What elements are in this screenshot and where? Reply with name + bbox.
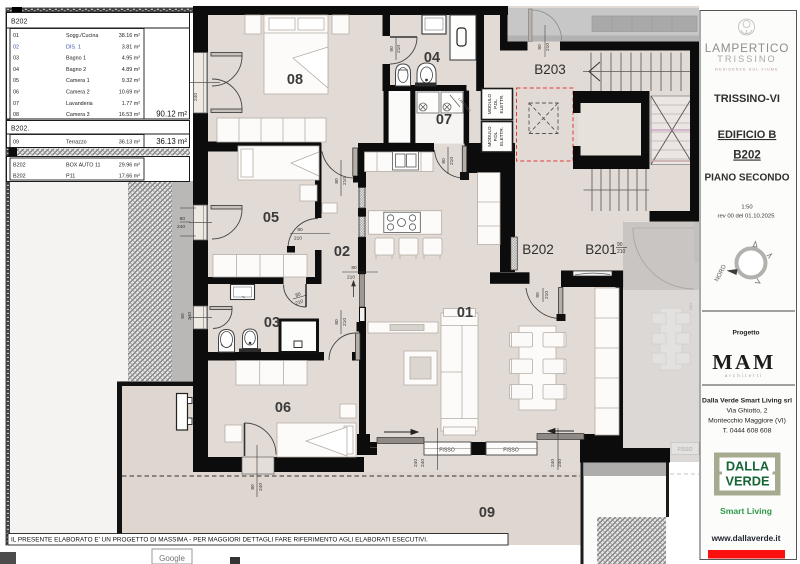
svg-text:LAMPERTICO: LAMPERTICO — [705, 41, 789, 55]
svg-text:architetti: architetti — [725, 373, 764, 378]
svg-text:B202: B202 — [733, 150, 761, 162]
svg-text:Progetto: Progetto — [732, 330, 759, 337]
svg-text:TRISSINO-VI: TRISSINO-VI — [714, 93, 780, 105]
svg-text:DALLA: DALLA — [726, 459, 769, 474]
svg-text:PIANO SECONDO: PIANO SECONDO — [704, 173, 789, 184]
svg-text:MAM: MAM — [712, 350, 776, 374]
svg-text:RESIDENZE SUL FIUME: RESIDENZE SUL FIUME — [715, 68, 778, 72]
svg-text:Via Ghiotto, 2: Via Ghiotto, 2 — [726, 408, 767, 415]
svg-text:Montecchio Maggiore (VI): Montecchio Maggiore (VI) — [708, 418, 786, 425]
svg-text:www.dallaverde.it: www.dallaverde.it — [711, 534, 781, 543]
svg-text:Dalla Verde Smart Living srl: Dalla Verde Smart Living srl — [702, 398, 792, 405]
svg-text:T. 0444 608 608: T. 0444 608 608 — [723, 428, 772, 435]
svg-text:rev 00 del 01.10.2025: rev 00 del 01.10.2025 — [718, 214, 776, 220]
svg-text:VERDE: VERDE — [725, 474, 770, 489]
svg-text:1:50: 1:50 — [741, 205, 752, 211]
svg-text:Smart Living: Smart Living — [720, 506, 772, 516]
svg-text:TRISSINO: TRISSINO — [717, 54, 776, 64]
svg-text:EDIFICIO B: EDIFICIO B — [718, 129, 777, 141]
